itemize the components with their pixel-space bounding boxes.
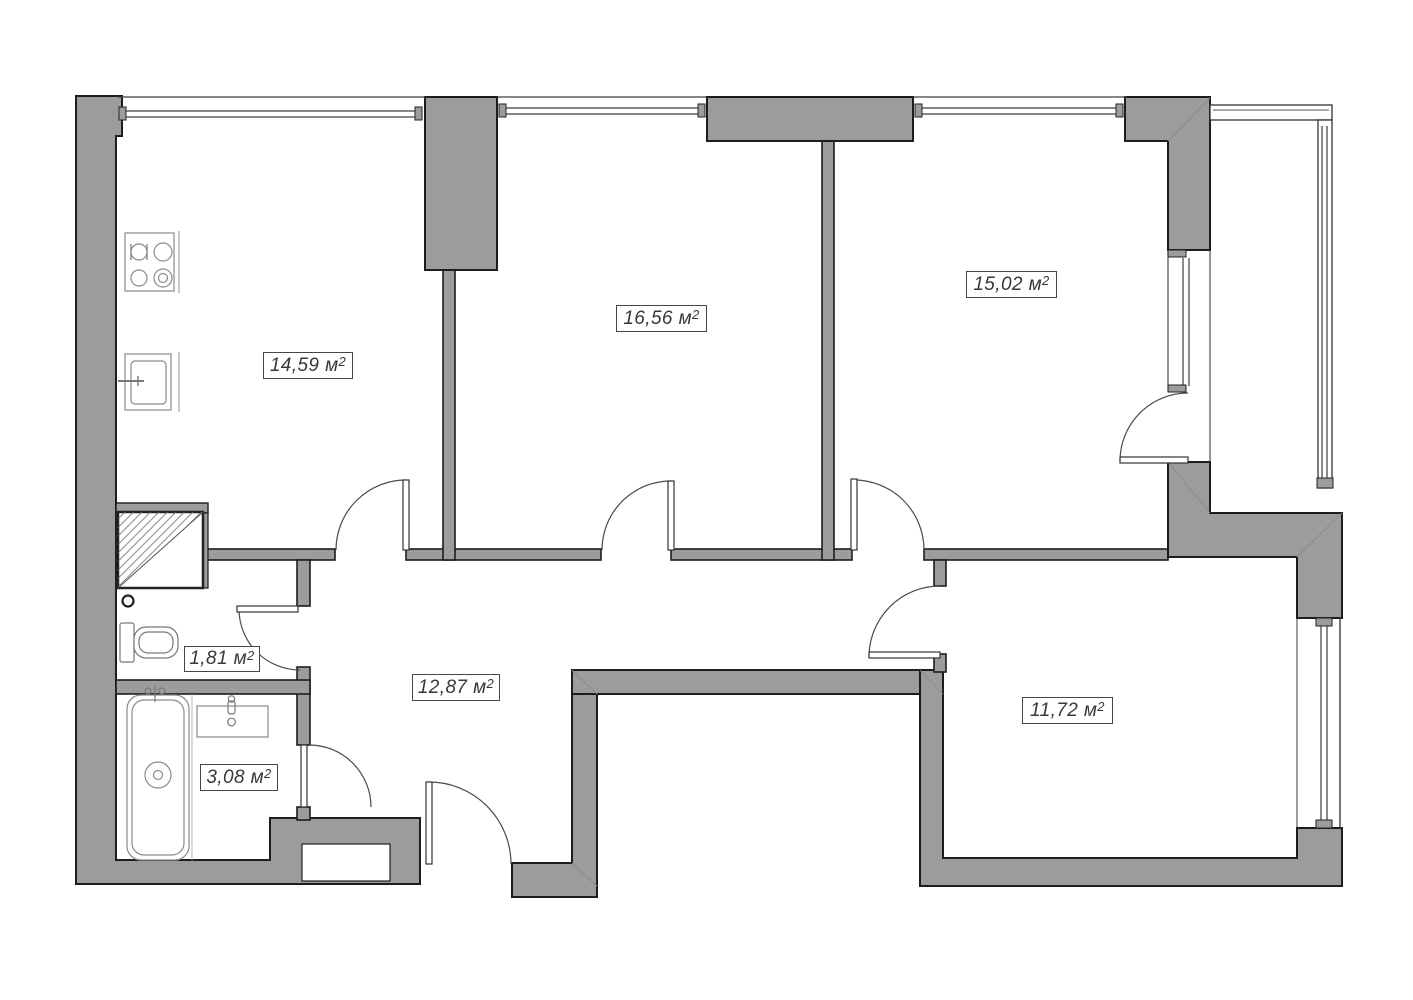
- area-sup: 2: [1097, 700, 1105, 713]
- wall-divider-kitchen: [443, 268, 455, 560]
- wall-entry-left: [512, 670, 597, 897]
- floor-plan-page: 14,59 м2 16,56 м2 15,02 м2 1,81 м2 12,87…: [0, 0, 1413, 1000]
- area-sup: 2: [247, 649, 255, 662]
- wall-corridor-d: [924, 549, 1168, 560]
- area-unit: м: [1023, 274, 1042, 296]
- area-unit: м: [673, 308, 692, 330]
- area-value: 11,72: [1030, 700, 1078, 722]
- area-unit: м: [228, 648, 247, 670]
- floor-plan-drawing: [0, 0, 1413, 1000]
- wall-pier-3: [1125, 97, 1210, 250]
- area-unit: м: [1078, 700, 1097, 722]
- window-kitchen: [118, 97, 426, 120]
- loggia-glazing: [1210, 105, 1333, 488]
- stove-icon: [125, 231, 179, 293]
- wall-block-right: [1168, 462, 1342, 618]
- area-label-bathroom: 3,08 м2: [200, 764, 278, 791]
- window-room-right: [913, 97, 1127, 117]
- door-loggia: [1120, 393, 1188, 463]
- door-bathroom: [301, 745, 371, 807]
- washbasin-icon: [197, 696, 268, 737]
- door-room-bottom-right: [869, 586, 940, 658]
- door-kitchen: [336, 480, 409, 550]
- area-label-hallway: 12,87 м2: [412, 674, 500, 701]
- door-room-right: [851, 479, 924, 550]
- wall-bath-right-b: [297, 807, 310, 820]
- wall-corridor-b: [406, 549, 601, 560]
- area-unit: м: [245, 767, 264, 789]
- wall-pier-1: [425, 97, 497, 270]
- bathtub-icon: [127, 686, 192, 860]
- area-label-kitchen: 14,59 м2: [263, 352, 353, 379]
- miter-lines: [572, 98, 1342, 886]
- pipe-icon: [123, 596, 134, 607]
- area-value: 16,56: [623, 308, 673, 330]
- wall-bottom-right: [920, 670, 1342, 886]
- wall-pier-2: [707, 97, 913, 141]
- area-value: 3,08: [206, 767, 245, 789]
- wall-corridor-a: [203, 549, 335, 560]
- kitchen-sink-icon: [118, 352, 179, 412]
- wall-wc-right-a: [297, 560, 310, 606]
- window-room-middle: [497, 97, 707, 117]
- area-value: 12,87: [418, 677, 468, 699]
- area-unit: м: [467, 677, 486, 699]
- area-label-room-top-right: 15,02 м2: [966, 271, 1057, 298]
- window-bottom-right: [1297, 618, 1340, 828]
- toilet-icon: [120, 623, 178, 662]
- entry-niche: [302, 844, 390, 881]
- shaft: [118, 512, 203, 588]
- area-sup: 2: [339, 355, 347, 368]
- door-room-middle: [602, 481, 674, 550]
- area-unit: м: [319, 355, 338, 377]
- wall-divider-rooms: [822, 141, 834, 560]
- area-sup: 2: [692, 308, 700, 321]
- doors: [237, 393, 1188, 864]
- area-label-wc: 1,81 м2: [184, 646, 260, 672]
- wall-hall-bottom: [572, 670, 943, 694]
- area-sup: 2: [1042, 274, 1050, 287]
- wall-door-jamb-top: [934, 560, 946, 586]
- area-value: 1,81: [189, 648, 228, 670]
- area-label-room-bottom-right: 11,72 м2: [1022, 697, 1113, 724]
- area-label-room-top-middle: 16,56 м2: [616, 305, 707, 332]
- window-room-to-loggia: [1168, 250, 1210, 462]
- area-value: 14,59: [270, 355, 320, 377]
- area-sup: 2: [487, 677, 495, 690]
- area-sup: 2: [264, 767, 272, 780]
- wall-wc-right-b: [297, 667, 310, 745]
- area-value: 15,02: [973, 274, 1023, 296]
- door-entry: [426, 782, 511, 864]
